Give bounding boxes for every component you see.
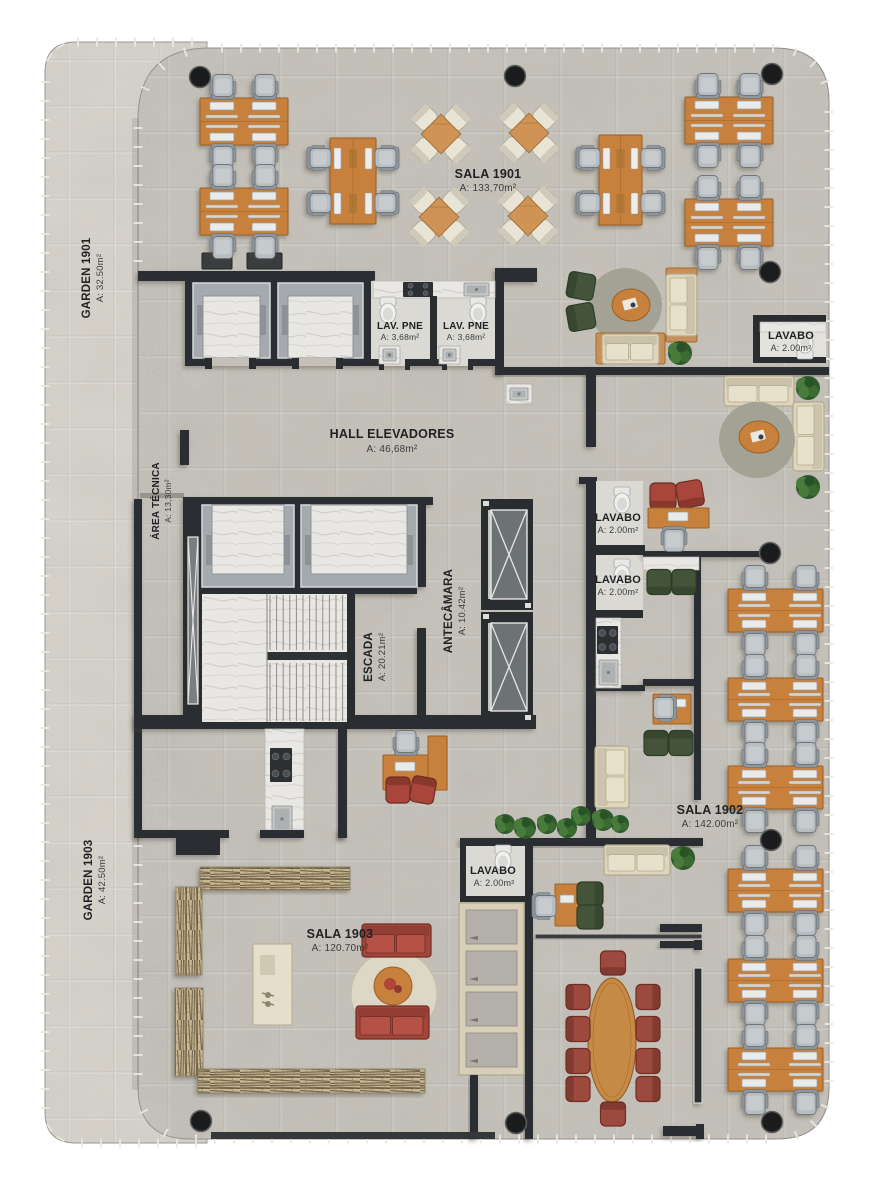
svg-text:SALA 1903: SALA 1903	[307, 927, 374, 941]
svg-text:A: 13,30m²: A: 13,30m²	[163, 479, 173, 523]
svg-text:GARDEN 1903: GARDEN 1903	[83, 840, 95, 921]
svg-text:ÁREA TÉCNICA: ÁREA TÉCNICA	[149, 462, 162, 540]
svg-text:LAV. PNE: LAV. PNE	[377, 321, 423, 332]
svg-text:A: 120.70m²: A: 120.70m²	[312, 943, 369, 954]
svg-text:LAVABO: LAVABO	[470, 865, 516, 877]
svg-text:A: 10.42m²: A: 10.42m²	[457, 587, 468, 635]
svg-text:A: 42.50m²: A: 42.50m²	[97, 856, 108, 904]
svg-text:HALL ELEVADORES: HALL ELEVADORES	[330, 427, 455, 441]
svg-text:A: 3,68m²: A: 3,68m²	[381, 332, 420, 342]
svg-text:A: 2.00m²: A: 2.00m²	[598, 587, 639, 597]
svg-text:A: 142.00m²: A: 142.00m²	[682, 819, 739, 830]
svg-text:A: 2.00m²: A: 2.00m²	[598, 525, 639, 535]
svg-text:A: 32.50m²: A: 32.50m²	[95, 254, 106, 302]
svg-text:SALA 1902: SALA 1902	[677, 803, 744, 817]
svg-text:SALA 1901: SALA 1901	[455, 167, 522, 181]
svg-text:ANTECÂMARA: ANTECÂMARA	[442, 569, 455, 653]
svg-text:LAVABO: LAVABO	[595, 574, 641, 586]
svg-text:A: 133,70m²: A: 133,70m²	[460, 183, 517, 194]
svg-text:A: 3,68m²: A: 3,68m²	[447, 332, 486, 342]
svg-text:LAVABO: LAVABO	[595, 512, 641, 524]
svg-text:LAVABO: LAVABO	[768, 330, 814, 342]
svg-text:A: 46,68m²: A: 46,68m²	[367, 444, 418, 455]
svg-text:A: 2.00m²: A: 2.00m²	[474, 878, 515, 888]
svg-text:LAV. PNE: LAV. PNE	[443, 321, 489, 332]
svg-text:A: 2.00m²: A: 2.00m²	[771, 343, 812, 353]
svg-text:A: 20.21m²: A: 20.21m²	[377, 633, 388, 681]
svg-text:ESCADA: ESCADA	[363, 632, 375, 682]
svg-text:GARDEN 1901: GARDEN 1901	[81, 237, 93, 318]
